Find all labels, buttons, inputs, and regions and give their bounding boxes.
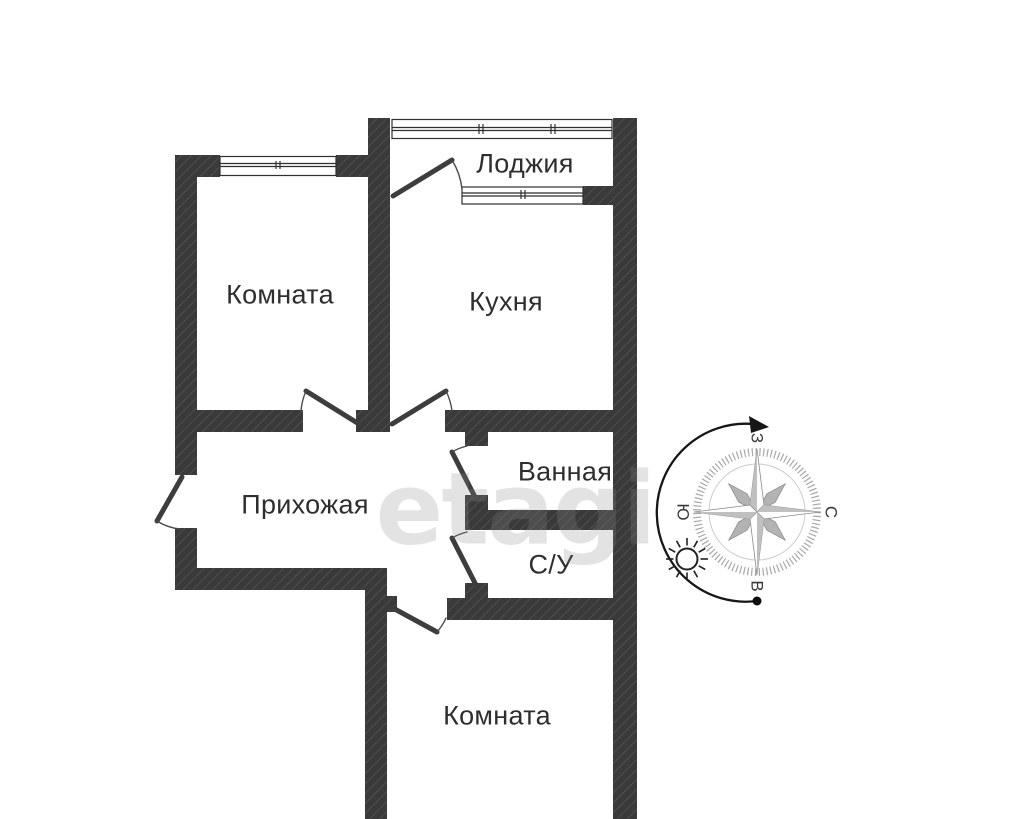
door-room-top (301, 391, 359, 424)
room-label-hallway: Прихожая (241, 490, 369, 521)
compass-letter-south: Ю (674, 503, 693, 520)
window-loggia-top (392, 120, 612, 139)
wall-kitchen-bottom (445, 410, 613, 432)
compass-letter-north: С (822, 506, 841, 518)
room-label-room-top: Комната (226, 280, 334, 311)
window-room-top (220, 157, 336, 176)
doors (157, 160, 476, 632)
door-entrance (157, 477, 182, 529)
room-label-wc: С/У (528, 550, 573, 581)
room-label-kitchen: Кухня (469, 287, 543, 318)
wall-wc-bottom (447, 598, 613, 620)
compass-letter-east: В (748, 580, 767, 591)
wall-bath-wc-divider (488, 510, 613, 530)
floor-plan-page: З С В Ю Лоджия Комната (0, 0, 1024, 819)
door-room-bottom (391, 607, 446, 632)
wall-loggia-sill-stub (583, 186, 613, 205)
wall-center-pillar (356, 410, 390, 432)
compass-letter-west: З (748, 433, 767, 443)
wall-right-outer (613, 118, 637, 819)
room-label-bathroom: Ванная (518, 457, 612, 488)
wall-hallway-bottom (175, 568, 387, 590)
wall-bath-stub-top (465, 432, 488, 446)
door-loggia (393, 160, 462, 196)
wall-room-bottom (197, 410, 303, 432)
wall-kitchen-left-column (368, 118, 390, 432)
sun-icon (666, 538, 708, 580)
compass-rose-icon: З С В Ю (674, 433, 841, 592)
room-label-room-bottom: Комната (443, 701, 551, 732)
wall-left-outer-upper (175, 155, 197, 475)
window-loggia-sill (462, 187, 583, 204)
room-label-loggia: Лоджия (476, 149, 573, 180)
door-bathroom (452, 446, 476, 499)
arrow-start-dot (753, 597, 762, 606)
door-kitchen (392, 391, 452, 424)
wall-bottomroom-left (365, 568, 387, 819)
floor-plan-drawing: З С В Ю (0, 0, 1024, 819)
wall-room-top-right (336, 155, 370, 177)
door-wc (452, 532, 476, 585)
